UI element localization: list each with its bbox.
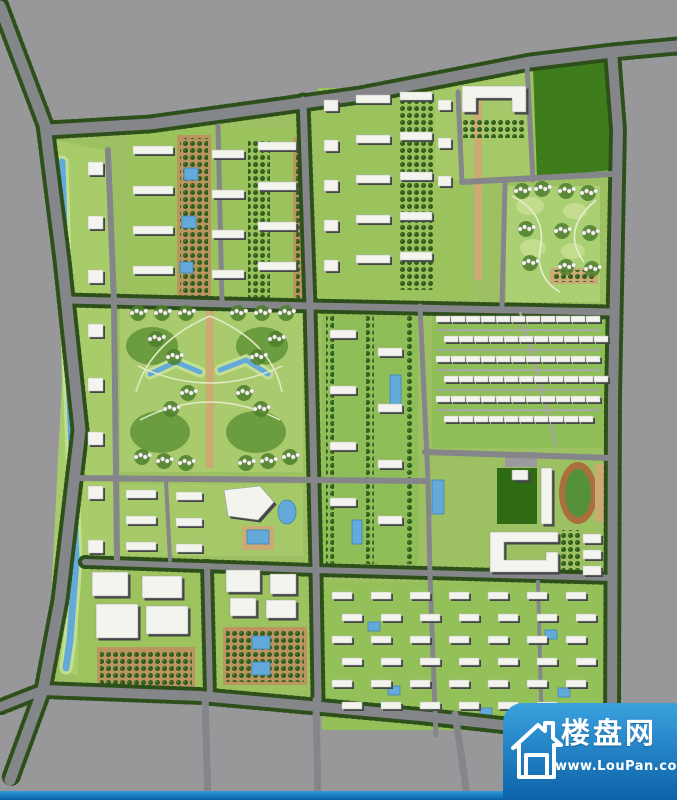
building bbox=[526, 396, 540, 402]
tower-building bbox=[178, 461, 182, 465]
tower-building bbox=[282, 335, 286, 339]
building bbox=[126, 516, 156, 524]
tower-building bbox=[170, 353, 174, 357]
building bbox=[556, 316, 570, 322]
commercial-west-d bbox=[146, 606, 188, 634]
building bbox=[564, 376, 578, 382]
tower-building bbox=[187, 461, 191, 465]
building bbox=[126, 542, 156, 550]
tower-building bbox=[264, 353, 268, 357]
building bbox=[583, 550, 601, 559]
building bbox=[258, 262, 296, 270]
tower-building bbox=[268, 337, 272, 341]
tower-building bbox=[274, 457, 278, 461]
building bbox=[579, 376, 593, 382]
building bbox=[212, 150, 244, 158]
building bbox=[466, 356, 480, 362]
tower-building bbox=[584, 189, 588, 193]
building bbox=[451, 356, 465, 362]
building bbox=[444, 376, 458, 382]
building bbox=[381, 658, 401, 665]
building bbox=[527, 680, 547, 687]
tower-building bbox=[563, 229, 567, 233]
building bbox=[549, 416, 563, 422]
orchard-mid-3 bbox=[406, 316, 414, 564]
tower-building bbox=[558, 265, 562, 269]
building bbox=[212, 230, 244, 238]
building bbox=[459, 658, 479, 665]
master-plan-svg bbox=[0, 0, 677, 800]
building bbox=[571, 316, 585, 322]
tower-building bbox=[156, 459, 160, 463]
orchard-b2-east bbox=[248, 140, 270, 298]
building bbox=[511, 356, 525, 362]
park-dark-lawn-3 bbox=[130, 411, 190, 453]
garden-lawn-2 bbox=[563, 203, 587, 219]
pitch-pavilion bbox=[512, 470, 528, 480]
tower-building bbox=[236, 391, 240, 395]
building bbox=[371, 592, 391, 599]
tower-building bbox=[175, 355, 179, 359]
building bbox=[449, 592, 469, 599]
building bbox=[330, 442, 356, 450]
building bbox=[594, 376, 608, 382]
tower-building bbox=[247, 461, 251, 465]
building bbox=[258, 142, 296, 150]
building bbox=[126, 490, 156, 498]
building bbox=[436, 356, 450, 362]
building bbox=[583, 566, 601, 575]
building bbox=[88, 324, 103, 337]
south-stub-1 bbox=[205, 697, 208, 800]
kg-pond bbox=[278, 500, 296, 524]
building bbox=[466, 316, 480, 322]
tower-building bbox=[144, 309, 148, 313]
tower-building bbox=[522, 225, 526, 229]
tower-building bbox=[253, 407, 257, 411]
watermark-url: www.LouPan.com bbox=[555, 759, 677, 774]
tower-building bbox=[230, 311, 234, 315]
tower-building bbox=[518, 187, 522, 191]
building bbox=[449, 636, 469, 643]
watermark-site-name: 楼盘网 bbox=[561, 719, 673, 748]
building bbox=[556, 356, 570, 362]
tower-building bbox=[262, 407, 266, 411]
building bbox=[400, 212, 432, 220]
garden-lawn-3 bbox=[520, 239, 546, 257]
building bbox=[496, 356, 510, 362]
building bbox=[330, 330, 356, 338]
building bbox=[526, 316, 540, 322]
building bbox=[324, 260, 338, 271]
building bbox=[410, 680, 430, 687]
tower-building bbox=[536, 259, 540, 263]
tower-building bbox=[167, 405, 171, 409]
building bbox=[324, 100, 338, 111]
building bbox=[438, 138, 451, 148]
building bbox=[586, 356, 600, 362]
building bbox=[571, 396, 585, 402]
building bbox=[444, 336, 458, 342]
tower-building bbox=[138, 453, 142, 457]
building bbox=[356, 175, 390, 183]
tower-building bbox=[572, 187, 576, 191]
building bbox=[332, 636, 352, 643]
building bbox=[451, 316, 465, 322]
building bbox=[488, 680, 508, 687]
tower-building bbox=[291, 455, 295, 459]
building bbox=[534, 336, 548, 342]
tower-building bbox=[591, 231, 595, 235]
building bbox=[519, 376, 533, 382]
pool bbox=[432, 480, 444, 514]
building bbox=[212, 270, 244, 278]
building bbox=[332, 592, 352, 599]
building bbox=[549, 376, 563, 382]
tower-building bbox=[254, 311, 258, 315]
building bbox=[579, 336, 593, 342]
building bbox=[474, 416, 488, 422]
tower-building bbox=[163, 407, 167, 411]
tower-building bbox=[180, 391, 184, 395]
building bbox=[481, 316, 495, 322]
garden-lawn-1 bbox=[516, 197, 544, 215]
building bbox=[438, 176, 451, 186]
building bbox=[527, 592, 547, 599]
building bbox=[594, 336, 608, 342]
building bbox=[534, 376, 548, 382]
tower-building bbox=[148, 337, 152, 341]
commercial-west-c bbox=[96, 604, 138, 638]
building bbox=[212, 190, 244, 198]
tower-building bbox=[596, 229, 600, 233]
building bbox=[488, 636, 508, 643]
building bbox=[400, 172, 432, 180]
orchard-b5 bbox=[462, 120, 526, 138]
building bbox=[444, 416, 458, 422]
building bbox=[474, 336, 488, 342]
building bbox=[258, 182, 296, 190]
tower-building bbox=[258, 309, 262, 313]
tower-building bbox=[554, 229, 558, 233]
garden-lawn-4 bbox=[561, 243, 585, 259]
building bbox=[436, 316, 450, 322]
park-dark-lawn-4 bbox=[226, 411, 286, 453]
tower-building bbox=[192, 309, 196, 313]
tower-building bbox=[567, 189, 571, 193]
building bbox=[576, 614, 596, 621]
tower-building bbox=[158, 309, 162, 313]
building bbox=[88, 540, 103, 553]
tower-building bbox=[252, 459, 256, 463]
tower-building bbox=[250, 355, 254, 359]
tower-building bbox=[526, 259, 530, 263]
commercial-east-b bbox=[270, 574, 296, 594]
pool bbox=[247, 530, 269, 544]
tower-building bbox=[514, 189, 518, 193]
building bbox=[88, 216, 103, 229]
building bbox=[451, 396, 465, 402]
tower-building bbox=[242, 459, 246, 463]
pool bbox=[558, 688, 570, 697]
building bbox=[489, 336, 503, 342]
building bbox=[449, 680, 469, 687]
tower-building bbox=[166, 355, 170, 359]
commercial-east-a bbox=[226, 570, 260, 592]
tower-building bbox=[278, 311, 282, 315]
tower-building bbox=[245, 391, 249, 395]
tower-building bbox=[580, 191, 584, 195]
building bbox=[342, 702, 362, 709]
pool bbox=[184, 168, 198, 180]
building bbox=[371, 680, 391, 687]
orchard-school bbox=[560, 530, 580, 574]
building bbox=[436, 396, 450, 402]
commercial-west-a bbox=[92, 572, 128, 596]
tower-building bbox=[168, 309, 172, 313]
tower-building bbox=[143, 455, 147, 459]
tower-building bbox=[250, 389, 254, 393]
tower-building bbox=[268, 309, 272, 313]
building bbox=[410, 636, 430, 643]
tower-building bbox=[254, 353, 258, 357]
tower-building bbox=[584, 267, 588, 271]
building bbox=[519, 336, 533, 342]
pool bbox=[252, 662, 270, 675]
building bbox=[576, 658, 596, 665]
tower-building bbox=[240, 389, 244, 393]
building bbox=[342, 614, 362, 621]
axis-plaza bbox=[206, 310, 214, 468]
pool bbox=[368, 622, 380, 631]
tower-building bbox=[165, 459, 169, 463]
building bbox=[176, 544, 202, 552]
building bbox=[549, 336, 563, 342]
building bbox=[566, 636, 586, 643]
tower-building bbox=[269, 459, 273, 463]
building bbox=[466, 396, 480, 402]
building bbox=[381, 614, 401, 621]
tower-building bbox=[154, 311, 158, 315]
tower-building bbox=[287, 311, 291, 315]
tower-building bbox=[160, 457, 164, 461]
commercial-east-d bbox=[266, 600, 296, 618]
building bbox=[496, 396, 510, 402]
building bbox=[498, 614, 518, 621]
building bbox=[420, 702, 440, 709]
tower-building bbox=[238, 461, 242, 465]
building bbox=[342, 658, 362, 665]
tower-building bbox=[148, 453, 152, 457]
tower-building bbox=[194, 389, 198, 393]
building bbox=[537, 658, 557, 665]
tower-building bbox=[589, 191, 593, 195]
building bbox=[537, 614, 557, 621]
building bbox=[332, 680, 352, 687]
building bbox=[556, 396, 570, 402]
building bbox=[133, 146, 173, 154]
commercial-east-c bbox=[230, 598, 256, 616]
building bbox=[586, 396, 600, 402]
building bbox=[571, 356, 585, 362]
tower-building bbox=[548, 185, 552, 189]
tower-building bbox=[182, 309, 186, 313]
building bbox=[498, 658, 518, 665]
pool bbox=[180, 262, 193, 273]
tower-building bbox=[518, 227, 522, 231]
tower-building bbox=[568, 227, 572, 231]
tower-building bbox=[522, 261, 526, 265]
building bbox=[400, 252, 432, 260]
tower-building bbox=[527, 227, 531, 231]
building bbox=[459, 614, 479, 621]
tower-building bbox=[523, 189, 527, 193]
master-plan-screenshot: 楼盘网 www.LouPan.com bbox=[0, 0, 677, 800]
building bbox=[534, 416, 548, 422]
tower-building bbox=[260, 459, 264, 463]
pool bbox=[182, 216, 196, 228]
building bbox=[88, 486, 103, 499]
building bbox=[459, 376, 473, 382]
orchard-commercial-west bbox=[100, 650, 192, 686]
tower-building bbox=[189, 391, 193, 395]
commercial-west-b bbox=[142, 576, 182, 598]
tower-building bbox=[234, 309, 238, 313]
tower-building bbox=[239, 311, 243, 315]
tower-building bbox=[263, 311, 267, 315]
tower-building bbox=[528, 187, 532, 191]
ns-road-garden-west bbox=[502, 184, 505, 306]
tower-building bbox=[163, 311, 167, 315]
building bbox=[324, 180, 338, 191]
tower-building bbox=[558, 227, 562, 231]
orchard-mid-2 bbox=[366, 316, 374, 564]
tower-building bbox=[558, 189, 562, 193]
building bbox=[420, 658, 440, 665]
building bbox=[400, 132, 432, 140]
tower-building bbox=[572, 263, 576, 267]
building bbox=[371, 636, 391, 643]
tower-building bbox=[162, 335, 166, 339]
building bbox=[378, 348, 402, 356]
tower-building bbox=[134, 455, 138, 459]
building bbox=[356, 255, 390, 263]
building bbox=[258, 222, 296, 230]
tower-building bbox=[184, 389, 188, 393]
right-boundary-road bbox=[612, 52, 618, 735]
building bbox=[583, 534, 601, 543]
tower-building bbox=[594, 189, 598, 193]
building bbox=[133, 226, 173, 234]
building bbox=[474, 376, 488, 382]
building bbox=[541, 356, 555, 362]
tower-building bbox=[538, 185, 542, 189]
tower-building bbox=[272, 335, 276, 339]
tower-building bbox=[534, 187, 538, 191]
tower-building bbox=[532, 225, 536, 229]
building bbox=[586, 316, 600, 322]
building bbox=[579, 416, 593, 422]
building bbox=[459, 702, 479, 709]
building bbox=[564, 336, 578, 342]
tower-building bbox=[588, 265, 592, 269]
tower-building bbox=[170, 457, 174, 461]
building bbox=[489, 376, 503, 382]
south-stub-2 bbox=[316, 700, 318, 800]
track-infield bbox=[565, 469, 591, 517]
building bbox=[420, 614, 440, 621]
tower-building bbox=[567, 265, 571, 269]
orchard-mid-1 bbox=[326, 316, 334, 564]
tower-building bbox=[259, 355, 263, 359]
building bbox=[481, 356, 495, 362]
building bbox=[88, 378, 103, 391]
building bbox=[133, 186, 173, 194]
building bbox=[504, 376, 518, 382]
building bbox=[378, 516, 402, 524]
school-dorm-building bbox=[541, 468, 552, 524]
tower-building bbox=[139, 311, 143, 315]
building bbox=[356, 135, 390, 143]
tower-building bbox=[182, 459, 186, 463]
tower-building bbox=[244, 309, 248, 313]
tower-building bbox=[277, 337, 281, 341]
building bbox=[176, 518, 202, 526]
building bbox=[176, 492, 202, 500]
building bbox=[459, 336, 473, 342]
tower-building bbox=[152, 335, 156, 339]
building bbox=[541, 396, 555, 402]
tower-building bbox=[134, 309, 138, 313]
tower-building bbox=[257, 405, 261, 409]
building bbox=[381, 702, 401, 709]
building bbox=[504, 416, 518, 422]
building bbox=[527, 636, 547, 643]
building bbox=[410, 592, 430, 599]
pool bbox=[352, 520, 362, 544]
tower-building bbox=[157, 337, 161, 341]
ew-road-mid-left bbox=[73, 478, 425, 481]
tower-building bbox=[296, 453, 300, 457]
building bbox=[566, 592, 586, 599]
pool bbox=[252, 636, 270, 649]
building bbox=[519, 416, 533, 422]
building bbox=[459, 416, 473, 422]
building bbox=[564, 416, 578, 422]
track-stand bbox=[595, 464, 604, 522]
watermark: 楼盘网 www.LouPan.com bbox=[503, 703, 677, 800]
building bbox=[488, 592, 508, 599]
tower-building bbox=[180, 353, 184, 357]
building bbox=[88, 432, 103, 445]
building bbox=[133, 266, 173, 274]
tower-building bbox=[582, 231, 586, 235]
tower-building bbox=[593, 267, 597, 271]
ns-road-commercial bbox=[207, 566, 210, 695]
tower-building bbox=[562, 263, 566, 267]
building bbox=[511, 396, 525, 402]
building bbox=[511, 316, 525, 322]
tower-building bbox=[267, 405, 271, 409]
tower-building bbox=[586, 229, 590, 233]
building bbox=[356, 215, 390, 223]
building bbox=[378, 460, 402, 468]
building bbox=[504, 336, 518, 342]
building bbox=[526, 356, 540, 362]
tower-building bbox=[264, 457, 268, 461]
tower-building bbox=[292, 309, 296, 313]
building bbox=[541, 316, 555, 322]
